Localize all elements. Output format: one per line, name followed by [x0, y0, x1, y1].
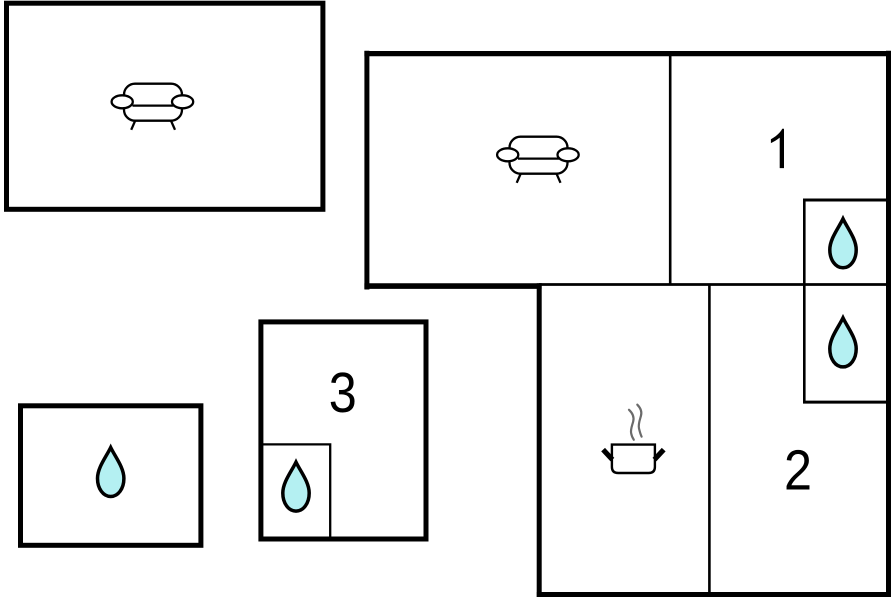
svg-text:2: 2 — [784, 439, 812, 503]
svg-text:3: 3 — [329, 361, 357, 425]
